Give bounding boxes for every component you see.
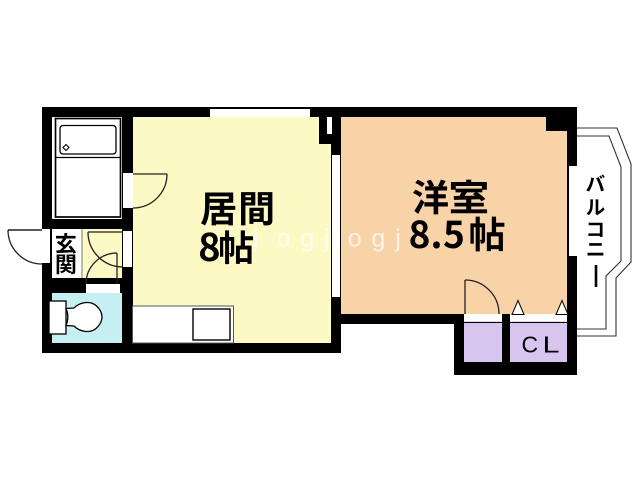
svg-text:j: j [394,225,401,253]
svg-text:g: g [372,225,386,253]
svg-text:o: o [348,225,362,253]
svg-text:g: g [300,225,314,253]
svg-text:o: o [277,225,291,253]
svg-text:j: j [323,225,330,253]
svg-text:L: L [543,332,560,358]
svg-text:C: C [522,332,539,358]
